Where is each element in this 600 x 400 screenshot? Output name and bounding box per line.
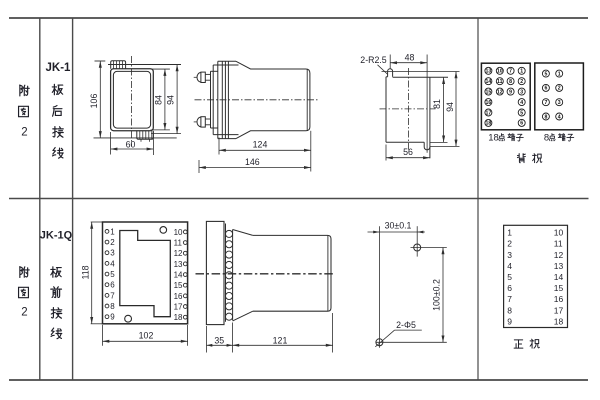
svg-text:10: 10 bbox=[554, 228, 564, 238]
svg-text:12: 12 bbox=[497, 89, 503, 95]
svg-text:102: 102 bbox=[139, 331, 154, 341]
svg-text:17: 17 bbox=[174, 302, 183, 311]
svg-text:11: 11 bbox=[554, 239, 563, 249]
svg-text:106: 106 bbox=[89, 94, 99, 109]
svg-text:3: 3 bbox=[520, 89, 523, 95]
svg-text:5: 5 bbox=[544, 71, 547, 77]
svg-text:4: 4 bbox=[520, 100, 523, 106]
svg-text:15: 15 bbox=[554, 283, 564, 293]
svg-text:94: 94 bbox=[166, 95, 176, 105]
svg-text:8: 8 bbox=[544, 114, 547, 120]
svg-text:13: 13 bbox=[174, 260, 183, 269]
svg-text:6: 6 bbox=[520, 121, 523, 127]
svg-text:35: 35 bbox=[214, 336, 224, 346]
svg-text:8: 8 bbox=[110, 302, 115, 311]
svg-text:3: 3 bbox=[558, 100, 561, 106]
svg-text:3: 3 bbox=[110, 249, 115, 258]
svg-text:8: 8 bbox=[544, 133, 549, 144]
svg-text:11: 11 bbox=[174, 238, 183, 247]
svg-text:146: 146 bbox=[245, 157, 260, 167]
svg-text:81: 81 bbox=[432, 99, 442, 109]
svg-text:5: 5 bbox=[520, 110, 523, 116]
svg-text:16: 16 bbox=[174, 292, 183, 301]
svg-text:3: 3 bbox=[507, 250, 512, 260]
svg-text:121: 121 bbox=[273, 336, 288, 346]
svg-text:2: 2 bbox=[21, 127, 27, 139]
svg-text:6: 6 bbox=[507, 283, 512, 293]
svg-text:48: 48 bbox=[405, 53, 415, 63]
svg-text:7: 7 bbox=[507, 294, 512, 304]
svg-text:2: 2 bbox=[507, 239, 512, 249]
svg-text:94: 94 bbox=[445, 102, 455, 112]
svg-text:16: 16 bbox=[554, 294, 564, 304]
svg-text:13: 13 bbox=[554, 261, 564, 271]
svg-text:15: 15 bbox=[174, 281, 183, 290]
svg-text:60: 60 bbox=[126, 139, 136, 149]
svg-text:16: 16 bbox=[486, 100, 492, 106]
svg-text:JK-1Q: JK-1Q bbox=[40, 230, 73, 242]
svg-text:JK-1: JK-1 bbox=[46, 62, 72, 74]
svg-text:2: 2 bbox=[520, 79, 523, 85]
svg-text:11: 11 bbox=[497, 79, 503, 85]
svg-text:2-Φ5: 2-Φ5 bbox=[396, 320, 416, 330]
svg-text:1: 1 bbox=[558, 71, 561, 77]
svg-text:9: 9 bbox=[110, 313, 115, 322]
svg-text:15: 15 bbox=[486, 89, 492, 95]
svg-text:2: 2 bbox=[110, 238, 115, 247]
svg-text:6: 6 bbox=[544, 86, 547, 92]
svg-text:118: 118 bbox=[80, 265, 90, 279]
svg-text:2: 2 bbox=[21, 307, 27, 319]
svg-text:1: 1 bbox=[520, 69, 523, 75]
svg-text:8: 8 bbox=[507, 305, 512, 315]
svg-text:6: 6 bbox=[110, 281, 115, 290]
svg-text:18: 18 bbox=[174, 313, 183, 322]
svg-text:9: 9 bbox=[507, 316, 512, 326]
svg-text:2-R2.5: 2-R2.5 bbox=[360, 55, 387, 65]
svg-text:8: 8 bbox=[509, 79, 512, 85]
svg-text:2: 2 bbox=[558, 86, 561, 92]
svg-text:5: 5 bbox=[507, 272, 512, 282]
svg-text:4: 4 bbox=[507, 261, 512, 271]
svg-text:14: 14 bbox=[174, 270, 183, 279]
svg-text:13: 13 bbox=[486, 69, 492, 75]
svg-text:84: 84 bbox=[154, 95, 164, 105]
svg-text:4: 4 bbox=[558, 114, 561, 120]
svg-text:14: 14 bbox=[554, 272, 564, 282]
svg-text:7: 7 bbox=[110, 291, 115, 300]
svg-text:10: 10 bbox=[497, 69, 503, 75]
svg-text:18: 18 bbox=[554, 316, 564, 326]
svg-text:56: 56 bbox=[403, 147, 413, 157]
svg-text:100±0.2: 100±0.2 bbox=[432, 279, 442, 311]
svg-text:5: 5 bbox=[110, 270, 115, 279]
svg-text:18: 18 bbox=[488, 133, 499, 144]
svg-text:12: 12 bbox=[174, 249, 183, 258]
svg-text:1: 1 bbox=[110, 227, 115, 236]
svg-text:30±0.1: 30±0.1 bbox=[385, 220, 412, 230]
svg-text:7: 7 bbox=[544, 100, 547, 106]
svg-text:12: 12 bbox=[554, 250, 564, 260]
svg-text:14: 14 bbox=[486, 79, 492, 85]
svg-text:4: 4 bbox=[110, 259, 115, 268]
svg-text:1: 1 bbox=[507, 228, 512, 238]
svg-text:17: 17 bbox=[486, 110, 492, 116]
svg-text:17: 17 bbox=[554, 305, 564, 315]
svg-text:18: 18 bbox=[486, 121, 492, 127]
svg-text:10: 10 bbox=[174, 228, 183, 237]
svg-text:7: 7 bbox=[509, 69, 512, 75]
svg-text:9: 9 bbox=[509, 89, 512, 95]
svg-text:124: 124 bbox=[253, 139, 268, 149]
